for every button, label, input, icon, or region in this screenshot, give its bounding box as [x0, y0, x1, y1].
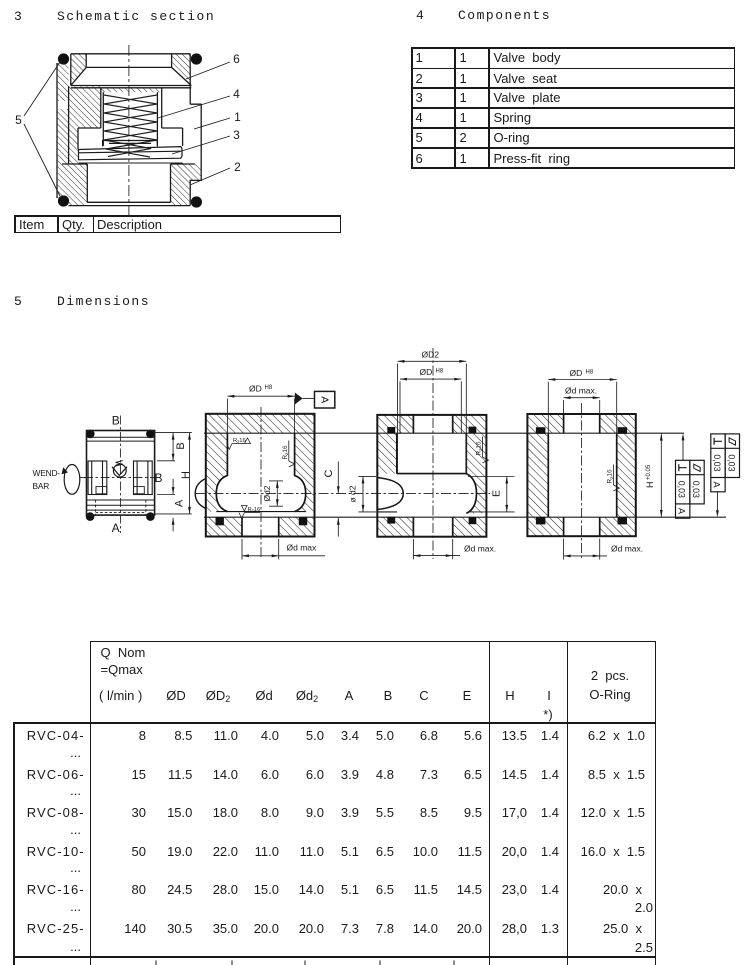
svg-text:0,03: 0,03 [677, 481, 687, 498]
svg-text:C: C [323, 469, 335, 477]
svg-text:BAR: BAR [33, 481, 50, 491]
svg-text:+0.05: +0.05 [646, 464, 652, 480]
svg-text:3: 3 [233, 128, 240, 142]
svg-text:Rz16: Rz16 [476, 441, 483, 455]
svg-text:H8: H8 [436, 369, 444, 375]
svg-text:H8: H8 [586, 370, 594, 376]
svg-text:ØD2: ØD2 [422, 350, 440, 360]
svg-text:5: 5 [15, 113, 22, 127]
svg-text:0,03: 0,03 [726, 454, 736, 471]
svg-text:Ød max.: Ød max. [565, 386, 597, 396]
svg-text:Rz16: Rz16 [282, 445, 289, 459]
svg-text:Rz16: Rz16 [607, 469, 614, 483]
svg-text:WEND-: WEND- [33, 468, 61, 478]
svg-text:H8: H8 [265, 385, 273, 391]
svg-text:A: A [112, 521, 120, 535]
svg-text:H: H [180, 471, 192, 479]
svg-text:Ød max.: Ød max. [464, 544, 496, 554]
svg-text:E: E [490, 490, 502, 497]
svg-text:ØD: ØD [570, 368, 583, 378]
svg-text:ØD: ØD [249, 384, 262, 394]
svg-text:Rz16: Rz16 [233, 438, 246, 444]
svg-text:Rz16: Rz16 [248, 507, 261, 513]
svg-text:0,03: 0,03 [712, 454, 722, 471]
svg-text:4: 4 [233, 87, 240, 101]
svg-text:B: B [112, 414, 120, 428]
svg-text:ØD: ØD [420, 367, 433, 377]
svg-text:B: B [154, 471, 162, 485]
svg-text:A: A [676, 508, 686, 515]
svg-text:H: H [645, 482, 655, 489]
svg-text:Ød max: Ød max [287, 543, 318, 553]
svg-text:A: A [319, 396, 331, 403]
svg-text:1: 1 [234, 110, 241, 124]
svg-text:ø d2: ø d2 [347, 485, 357, 502]
svg-text:A: A [712, 482, 722, 489]
svg-text:A: A [173, 499, 185, 507]
svg-text:6: 6 [233, 52, 240, 66]
svg-text:2: 2 [234, 160, 241, 174]
svg-text:0,03: 0,03 [691, 481, 701, 498]
svg-text:B: B [175, 442, 187, 449]
svg-text:Ød max.: Ød max. [611, 544, 643, 554]
svg-text:Ød2: Ød2 [262, 485, 272, 501]
